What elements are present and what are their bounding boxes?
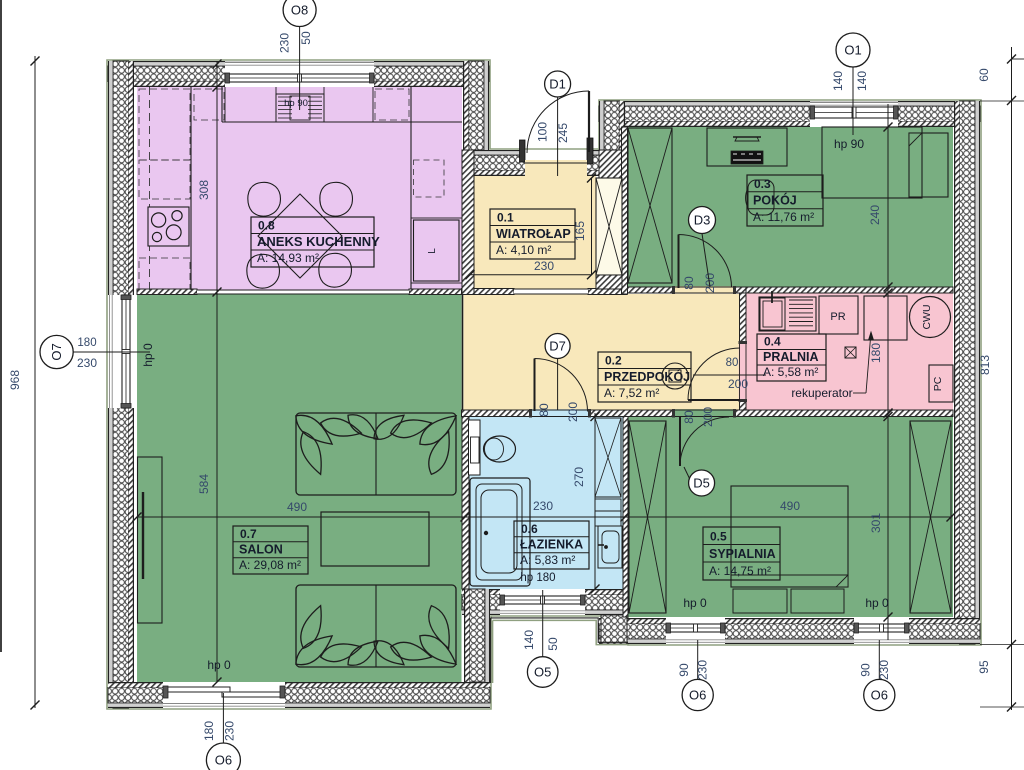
svg-text:230: 230 [533, 499, 553, 513]
svg-text:A: 4,10 m²: A: 4,10 m² [496, 243, 551, 257]
svg-text:rekuperator: rekuperator [791, 386, 852, 400]
svg-text:230: 230 [696, 660, 710, 680]
svg-text:180: 180 [202, 721, 216, 741]
svg-text:A: 14,75 m²: A: 14,75 m² [709, 564, 771, 578]
svg-text:D1: D1 [549, 77, 566, 92]
svg-text:0.2: 0.2 [605, 354, 622, 368]
svg-text:80: 80 [682, 410, 696, 424]
svg-text:230: 230 [877, 660, 891, 680]
svg-text:140: 140 [522, 630, 536, 650]
svg-text:hp 0: hp 0 [865, 596, 889, 610]
svg-text:230: 230 [77, 356, 97, 370]
svg-text:90: 90 [859, 663, 873, 677]
svg-text:0.1: 0.1 [497, 211, 514, 225]
svg-text:hp 0: hp 0 [141, 343, 155, 367]
svg-text:200: 200 [701, 407, 715, 427]
svg-text:80: 80 [682, 276, 696, 290]
svg-text:308: 308 [197, 180, 211, 200]
svg-text:CWU: CWU [921, 304, 933, 329]
svg-text:SYPIALNIA: SYPIALNIA [709, 547, 776, 561]
svg-text:D3: D3 [694, 213, 711, 228]
svg-text:L: L [427, 248, 438, 254]
svg-text:PR: PR [830, 311, 845, 323]
svg-text:180: 180 [77, 337, 96, 349]
svg-text:O5: O5 [534, 665, 551, 680]
svg-text:140: 140 [831, 71, 845, 91]
svg-text:240: 240 [868, 205, 882, 225]
svg-text:230: 230 [278, 33, 292, 53]
svg-text:hp 90: hp 90 [284, 98, 308, 109]
svg-text:80: 80 [537, 403, 551, 417]
svg-text:200: 200 [566, 402, 580, 422]
svg-text:A: 7,52 m²: A: 7,52 m² [604, 386, 659, 400]
svg-text:PC: PC [932, 376, 944, 391]
svg-text:140: 140 [855, 71, 869, 91]
svg-text:0.7: 0.7 [240, 527, 257, 541]
svg-text:O6: O6 [871, 688, 888, 703]
svg-text:490: 490 [287, 500, 307, 514]
svg-text:A: 5,83 m²: A: 5,83 m² [520, 553, 575, 567]
svg-text:D5: D5 [693, 476, 710, 491]
svg-text:60: 60 [977, 68, 991, 82]
svg-text:301: 301 [869, 513, 883, 533]
svg-text:100: 100 [536, 122, 550, 142]
svg-text:50: 50 [299, 31, 313, 45]
svg-text:180: 180 [869, 343, 883, 363]
svg-text:490: 490 [780, 499, 800, 513]
svg-text:PRALNIA: PRALNIA [763, 350, 819, 364]
svg-text:hp 180: hp 180 [520, 572, 555, 584]
svg-text:A: 14,93 m²: A: 14,93 m² [257, 251, 319, 265]
svg-text:WIATROŁAP: WIATROŁAP [496, 227, 571, 241]
svg-text:0.4: 0.4 [764, 335, 781, 349]
svg-text:A: 5,58 m²: A: 5,58 m² [763, 365, 818, 379]
svg-text:230: 230 [223, 721, 237, 741]
svg-text:O6: O6 [215, 753, 232, 768]
svg-text:O8: O8 [291, 3, 308, 18]
svg-text:584: 584 [197, 474, 211, 494]
svg-text:0.8: 0.8 [258, 219, 275, 233]
svg-text:ŁAZIENKA: ŁAZIENKA [520, 538, 583, 552]
svg-text:50: 50 [546, 637, 560, 651]
svg-text:D7: D7 [549, 339, 566, 354]
svg-text:hp 0: hp 0 [207, 658, 231, 672]
svg-text:200: 200 [703, 273, 717, 293]
svg-text:ANEKS KUCHENNY: ANEKS KUCHENNY [257, 234, 380, 249]
svg-text:270: 270 [572, 467, 586, 487]
svg-text:95: 95 [977, 660, 991, 674]
svg-text:200: 200 [728, 377, 748, 391]
svg-text:0.6: 0.6 [521, 522, 538, 536]
svg-text:968: 968 [8, 370, 22, 390]
svg-text:O1: O1 [844, 43, 861, 58]
svg-text:hp 90: hp 90 [834, 137, 864, 151]
svg-text:POKÓJ: POKÓJ [753, 193, 797, 208]
svg-text:0.3: 0.3 [754, 177, 771, 191]
svg-text:230: 230 [534, 259, 554, 273]
svg-text:A: 29,08 m²: A: 29,08 m² [239, 558, 301, 572]
svg-text:80: 80 [726, 357, 739, 369]
svg-text:90: 90 [677, 663, 691, 677]
svg-text:0.5: 0.5 [710, 530, 727, 544]
svg-text:SALON: SALON [239, 543, 283, 557]
svg-text:A: 11,76 m²: A: 11,76 m² [753, 210, 814, 224]
svg-text:813: 813 [978, 355, 992, 375]
svg-text:hp 0: hp 0 [683, 596, 707, 610]
svg-text:O7: O7 [49, 343, 64, 360]
svg-text:O6: O6 [689, 688, 706, 703]
